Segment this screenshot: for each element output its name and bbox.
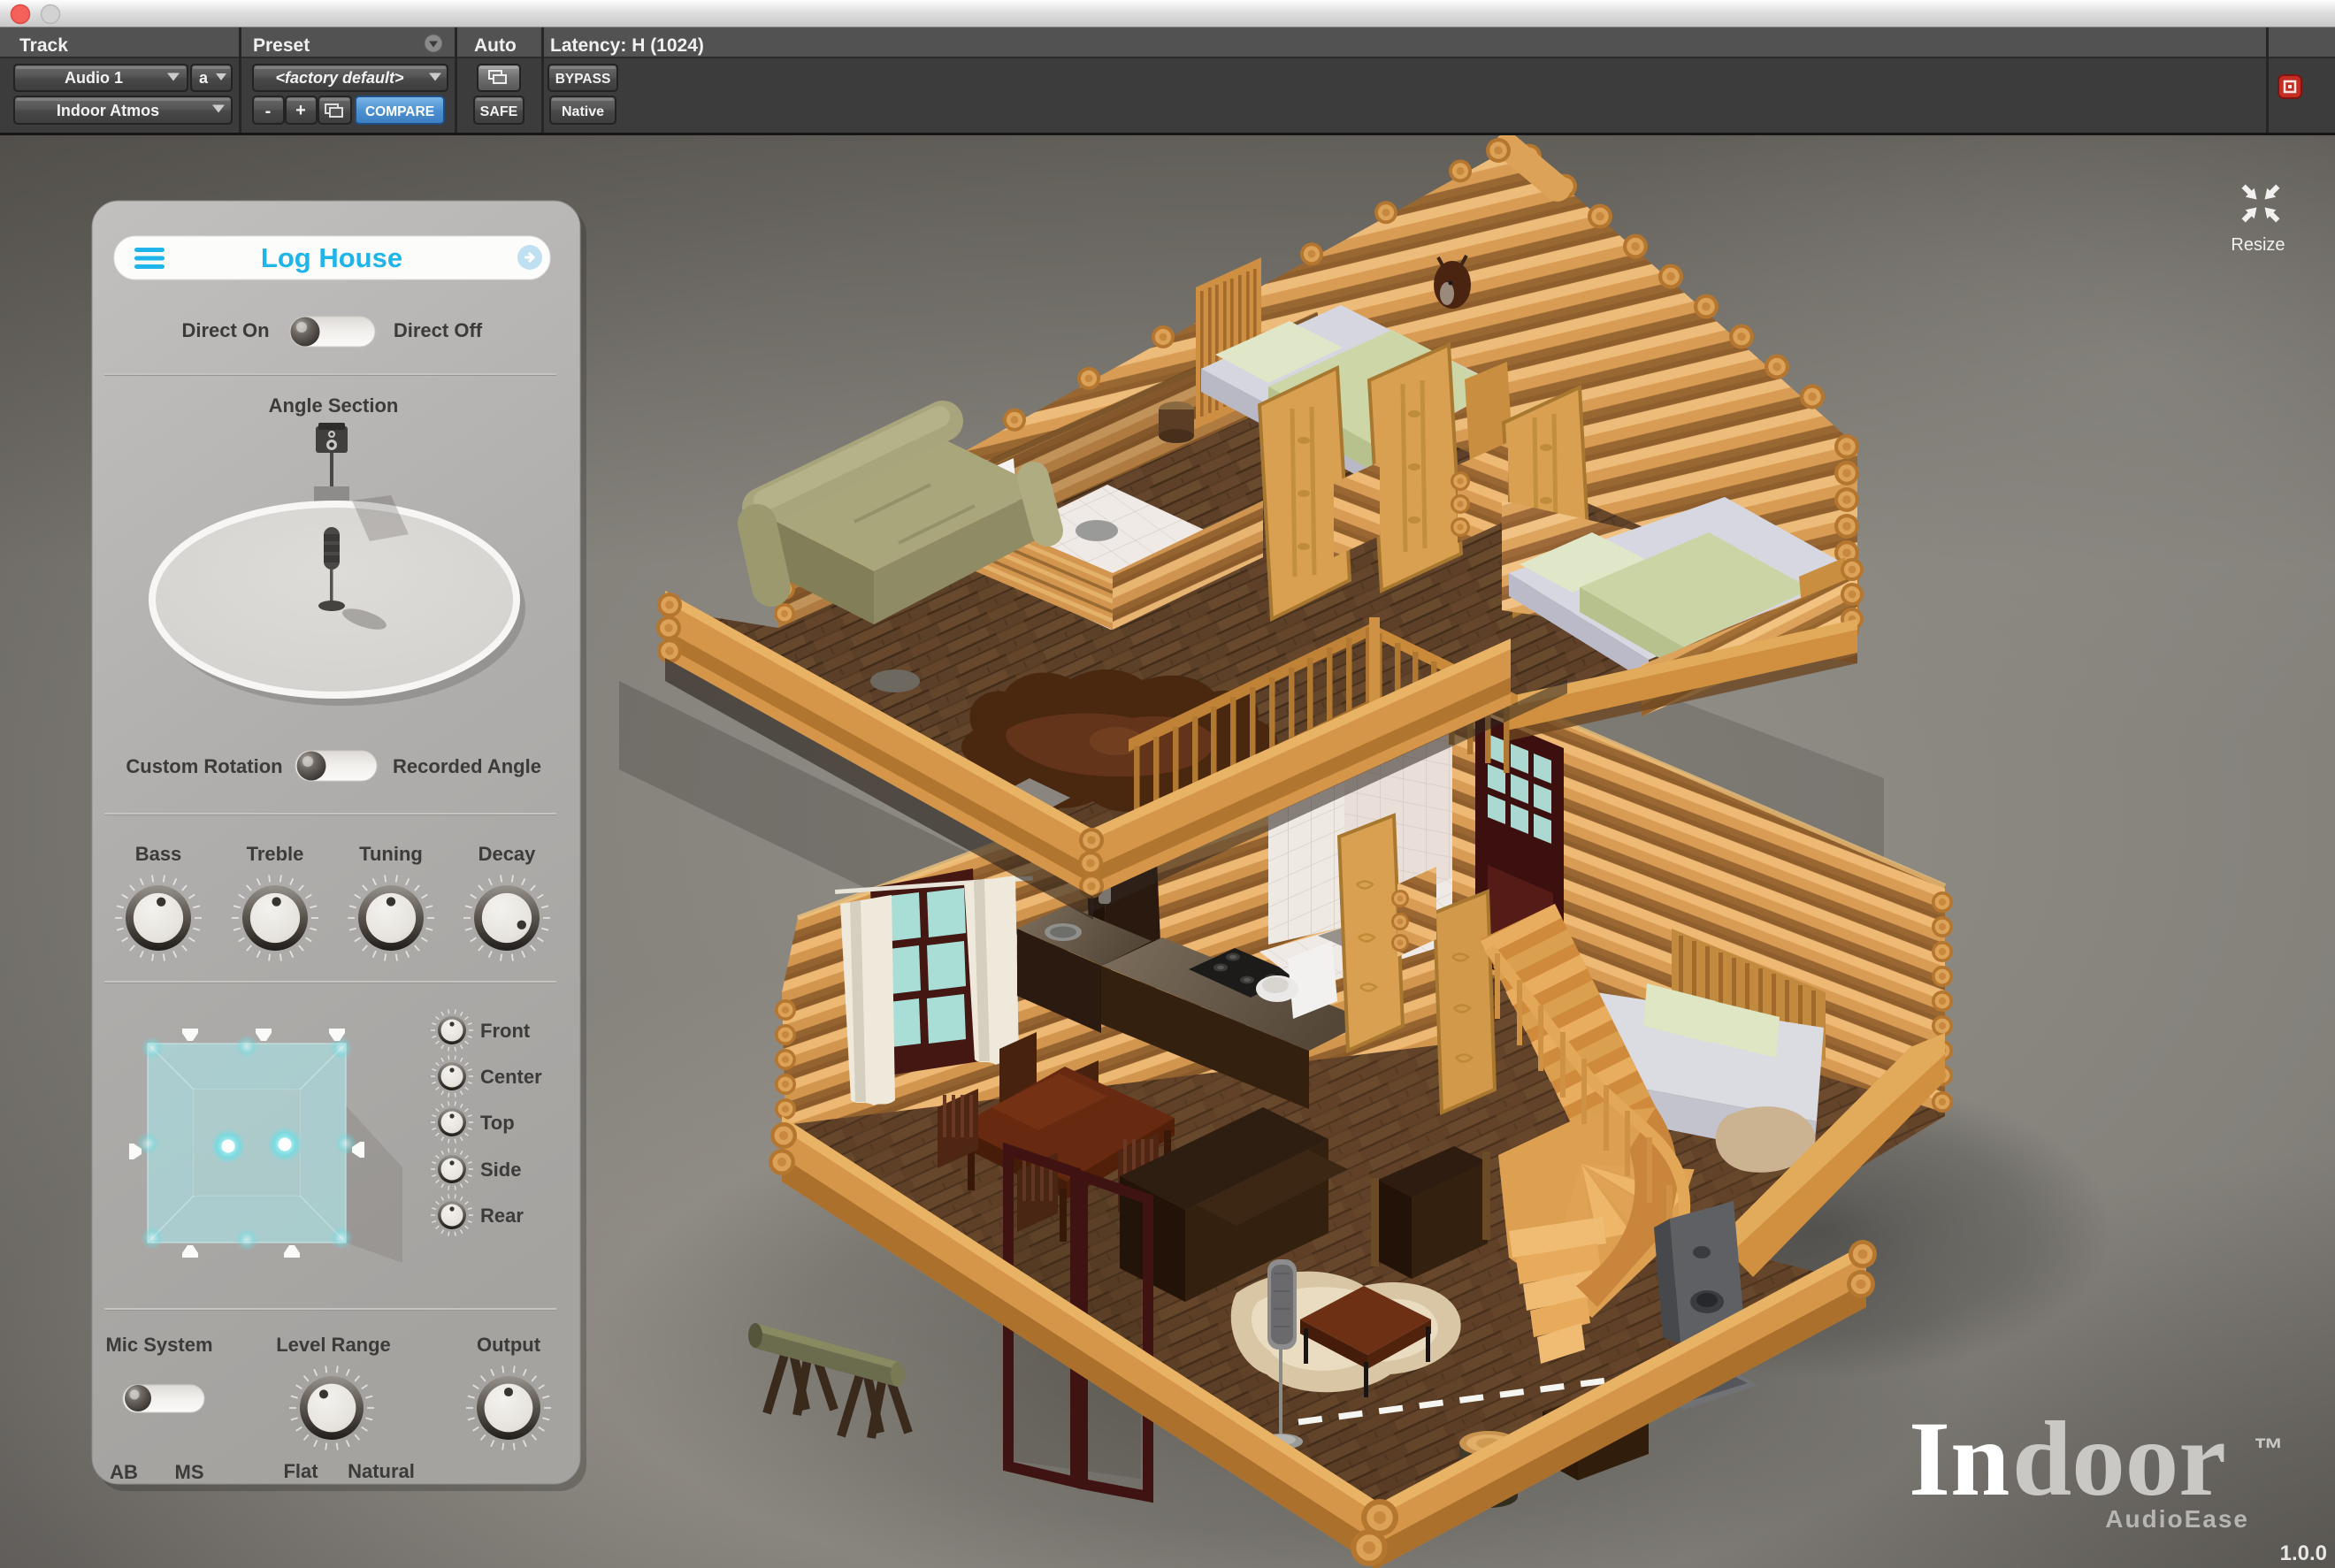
svg-text:Mic System: Mic System: [105, 1334, 212, 1356]
svg-text:Indoor Atmos: Indoor Atmos: [57, 102, 159, 119]
svg-text:Front: Front: [480, 1020, 531, 1042]
svg-text:Resize: Resize: [2231, 235, 2285, 255]
svg-text:COMPARE: COMPARE: [365, 104, 434, 119]
svg-text:Level Range: Level Range: [276, 1334, 391, 1356]
svg-text:Tuning: Tuning: [359, 843, 423, 865]
svg-text:Treble: Treble: [247, 843, 304, 865]
svg-text:Natural: Natural: [348, 1460, 415, 1482]
svg-text:Audio 1: Audio 1: [65, 69, 123, 87]
svg-text:Custom Rotation: Custom Rotation: [126, 755, 282, 777]
svg-text:Bass: Bass: [135, 843, 182, 865]
svg-text:Native: Native: [562, 104, 604, 119]
svg-text:Rear: Rear: [480, 1205, 524, 1227]
svg-text:MS: MS: [175, 1461, 204, 1483]
svg-text:-: -: [265, 102, 272, 121]
svg-text:Direct Off: Direct Off: [394, 319, 483, 341]
svg-text:Direct On: Direct On: [181, 319, 269, 341]
svg-text:door: door: [2012, 1400, 2226, 1518]
svg-text:Track: Track: [19, 35, 68, 56]
svg-text:a: a: [199, 69, 209, 87]
svg-text:Log House: Log House: [261, 242, 402, 273]
svg-text:1.0.0: 1.0.0: [2280, 1541, 2327, 1565]
svg-text:<factory default>: <factory default>: [275, 69, 404, 87]
svg-text:AudioEase: AudioEase: [2105, 1505, 2249, 1533]
svg-text:+: +: [295, 101, 306, 120]
svg-text:BYPASS: BYPASS: [555, 72, 611, 87]
svg-text:Top: Top: [480, 1112, 515, 1134]
svg-text:Preset: Preset: [253, 35, 310, 56]
svg-text:Output: Output: [477, 1334, 541, 1356]
svg-text:Latency: H (1024): Latency: H (1024): [550, 35, 704, 56]
svg-text:Auto: Auto: [474, 35, 517, 56]
svg-text:Center: Center: [480, 1066, 542, 1088]
svg-text:AB: AB: [110, 1461, 138, 1483]
svg-text:In: In: [1909, 1400, 2010, 1518]
svg-text:Side: Side: [480, 1159, 521, 1181]
svg-text:Angle Section: Angle Section: [269, 394, 399, 417]
svg-text:Decay: Decay: [478, 843, 537, 865]
svg-text:Flat: Flat: [283, 1460, 318, 1482]
svg-text:Recorded Angle: Recorded Angle: [393, 755, 541, 777]
svg-text:™: ™: [2254, 1433, 2284, 1466]
svg-text:SAFE: SAFE: [480, 104, 518, 119]
